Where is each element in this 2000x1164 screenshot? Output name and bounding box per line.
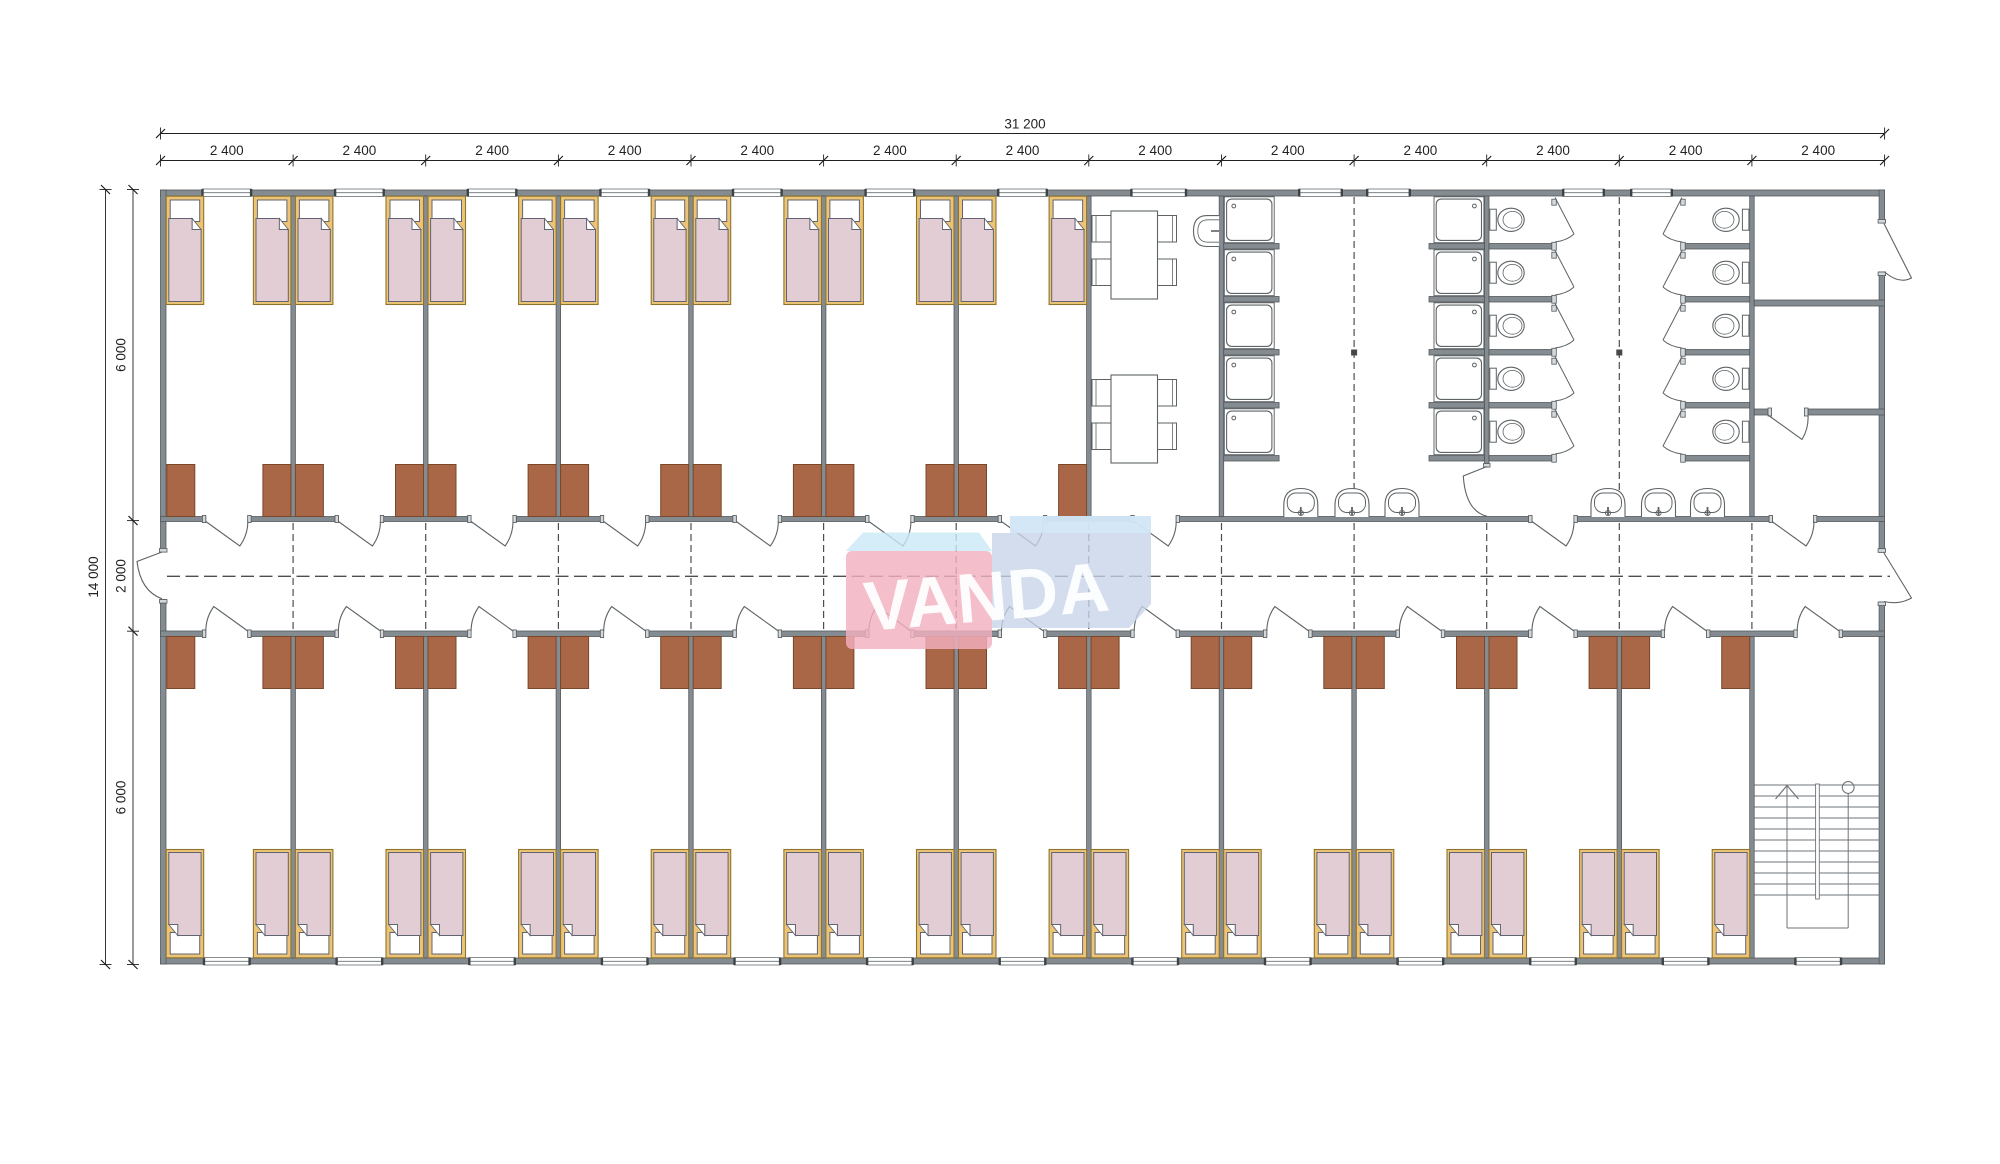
svg-text:2 400: 2 400 (1138, 143, 1172, 158)
svg-text:14 000: 14 000 (86, 556, 101, 597)
svg-text:2 400: 2 400 (1271, 143, 1305, 158)
svg-text:2 400: 2 400 (873, 143, 907, 158)
svg-text:2 400: 2 400 (740, 143, 774, 158)
svg-text:2 400: 2 400 (210, 143, 244, 158)
svg-text:2 000: 2 000 (114, 559, 129, 593)
svg-text:6 000: 6 000 (114, 338, 129, 372)
svg-text:2 400: 2 400 (343, 143, 377, 158)
svg-text:2 400: 2 400 (1006, 143, 1040, 158)
svg-text:2 400: 2 400 (475, 143, 509, 158)
svg-text:2 400: 2 400 (608, 143, 642, 158)
svg-text:2 400: 2 400 (1669, 143, 1703, 158)
svg-text:6 000: 6 000 (114, 781, 129, 815)
svg-text:2 400: 2 400 (1404, 143, 1438, 158)
svg-text:2 400: 2 400 (1801, 143, 1835, 158)
svg-text:2 400: 2 400 (1536, 143, 1570, 158)
svg-text:31 200: 31 200 (1004, 117, 1045, 132)
